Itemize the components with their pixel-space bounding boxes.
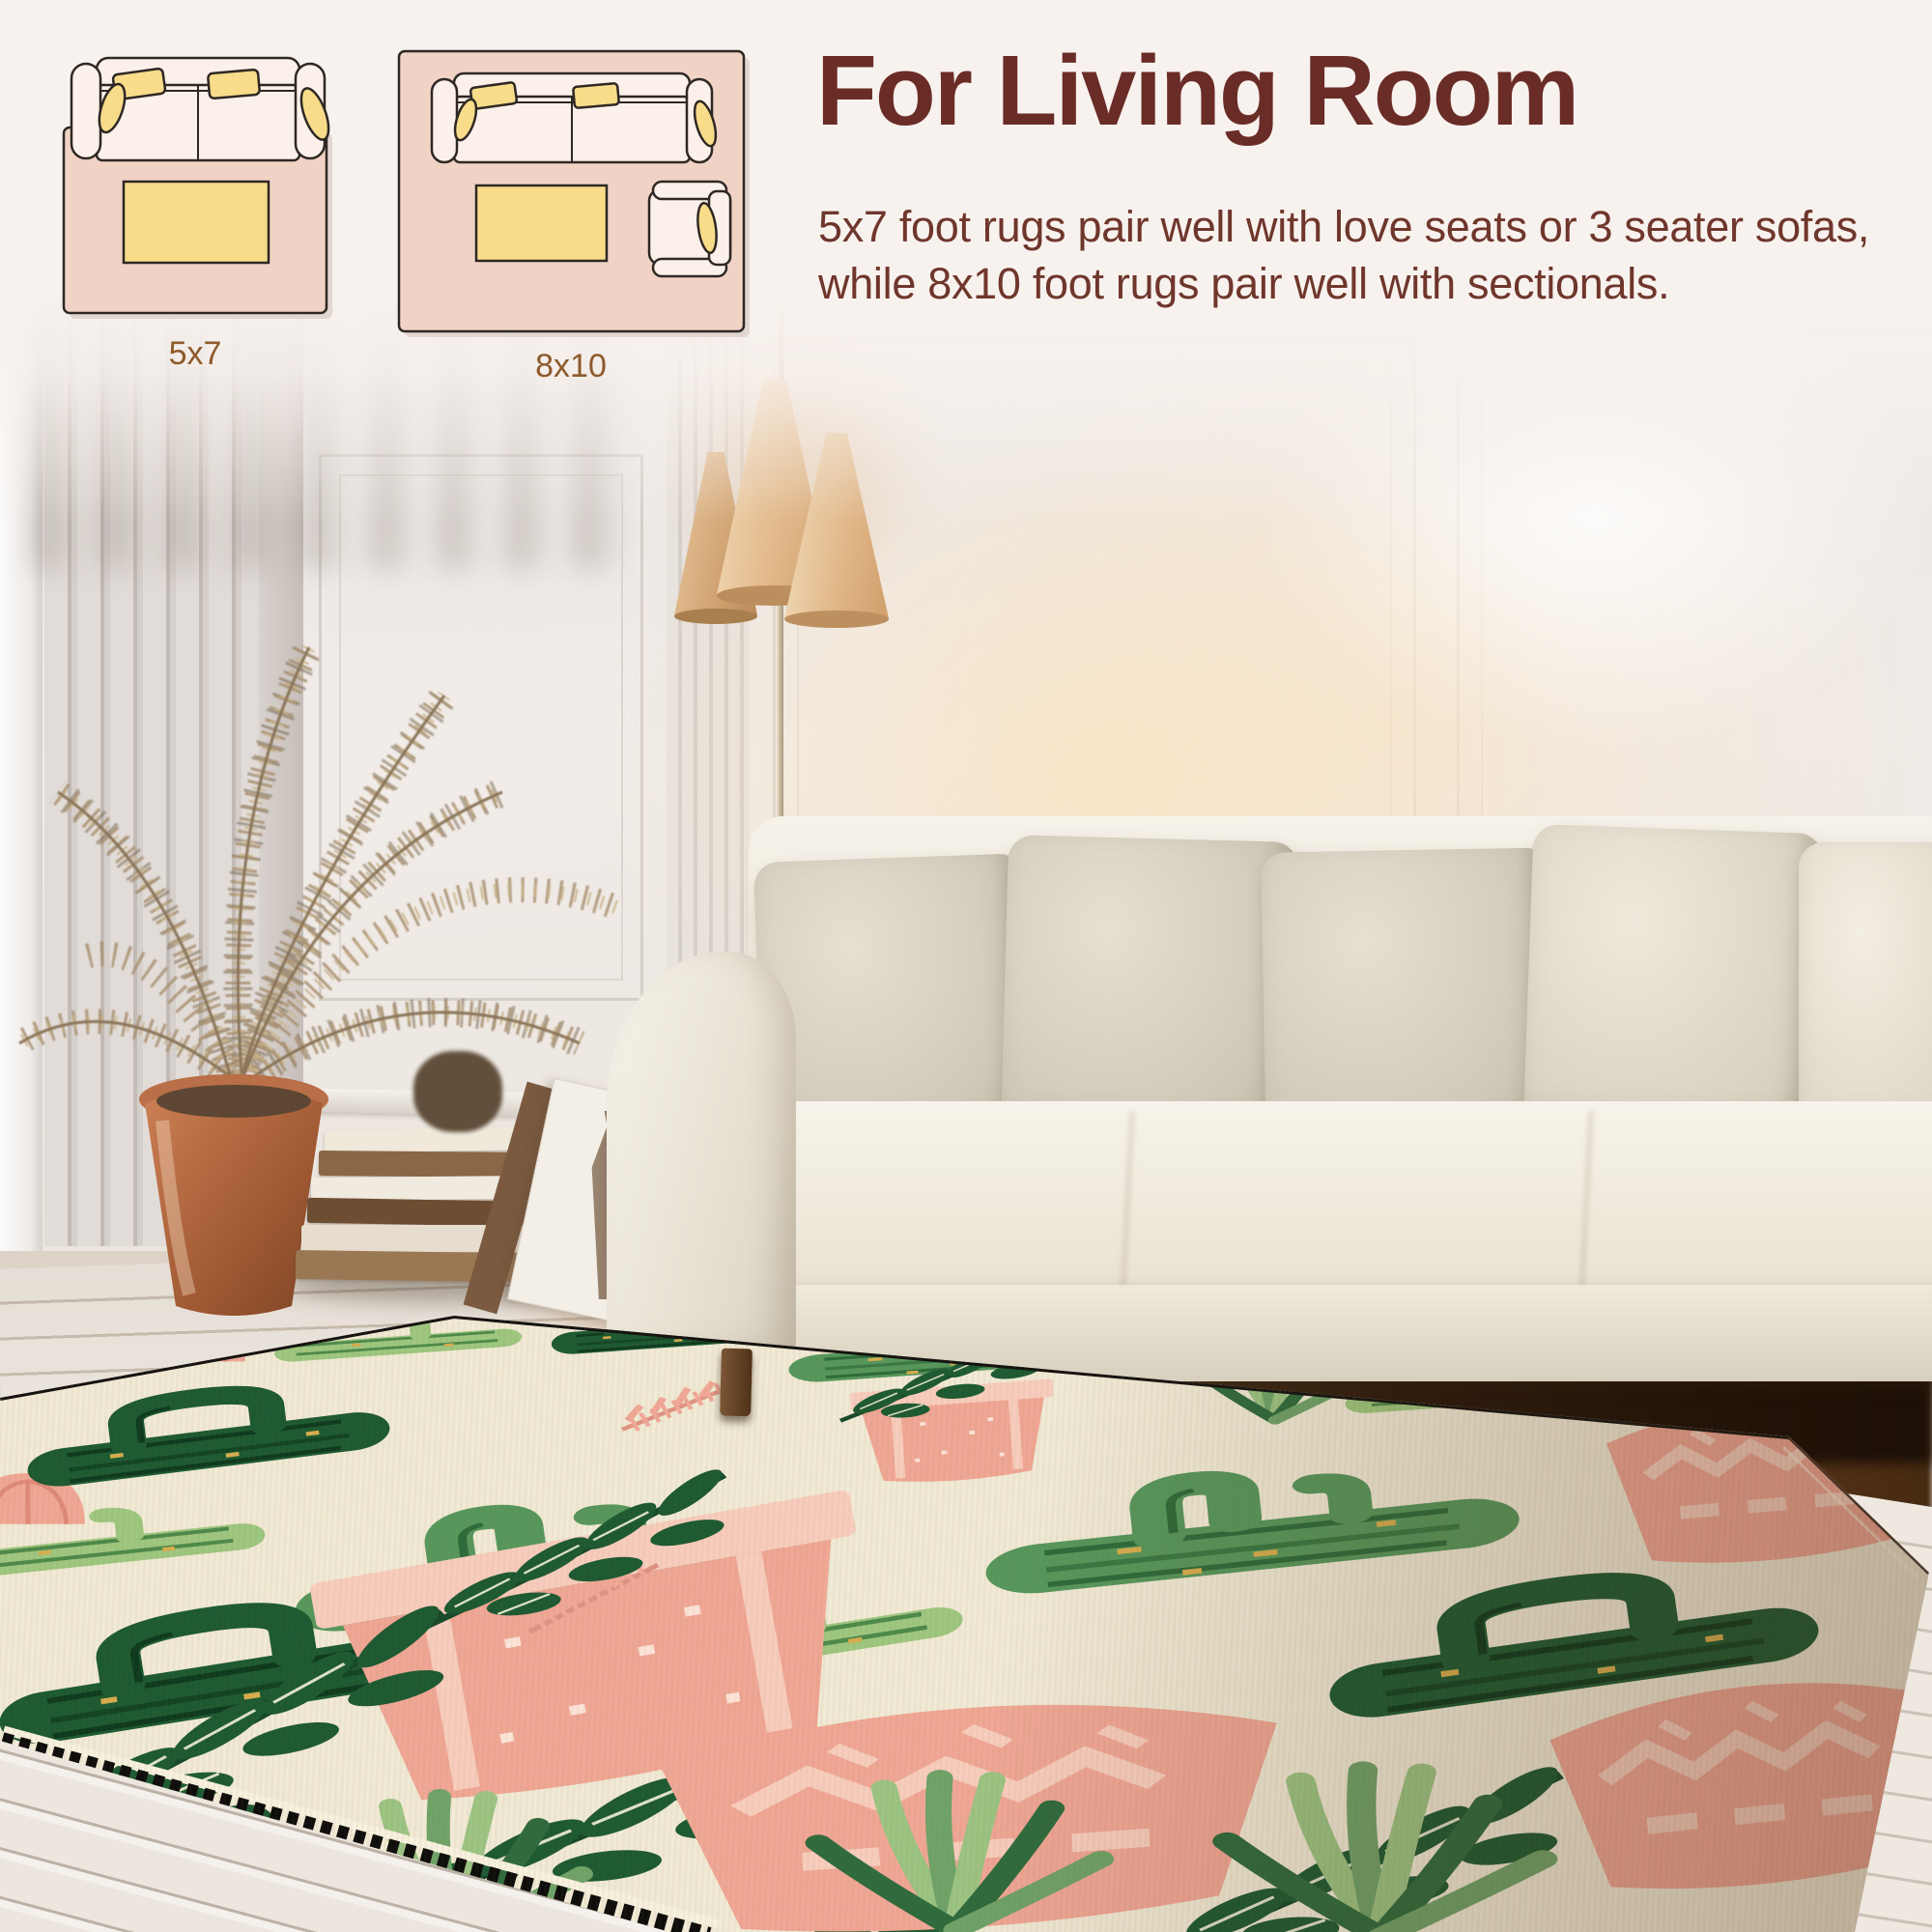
- diagram-5x7: 5x7: [64, 58, 334, 372]
- rug-size-diagrams: 5x7 8x10: [29, 29, 782, 396]
- sofa-pillow-4: [1523, 824, 1824, 1143]
- diagram-8x10: 8x10: [399, 51, 750, 384]
- book: [325, 1126, 527, 1153]
- sofa-pillow-2: [1001, 835, 1298, 1147]
- figurine: [413, 1051, 502, 1132]
- sofa-armrest-left: [607, 952, 796, 1361]
- diagram-armchair: [649, 182, 730, 276]
- product-image: For Living Room 5x7 foot rugs pair well …: [0, 0, 1932, 1932]
- page-title: For Living Room: [816, 39, 1918, 143]
- description-text: 5x7 foot rugs pair well with love seats …: [818, 199, 1905, 312]
- label-8x10: 8x10: [535, 348, 607, 384]
- sofa-pillow-5: [1799, 842, 1932, 1142]
- sofa-wood-leg: [720, 1349, 753, 1417]
- label-5x7: 5x7: [169, 335, 222, 372]
- palm-fronds: [19, 647, 618, 1082]
- terracotta-pot: [139, 1074, 328, 1316]
